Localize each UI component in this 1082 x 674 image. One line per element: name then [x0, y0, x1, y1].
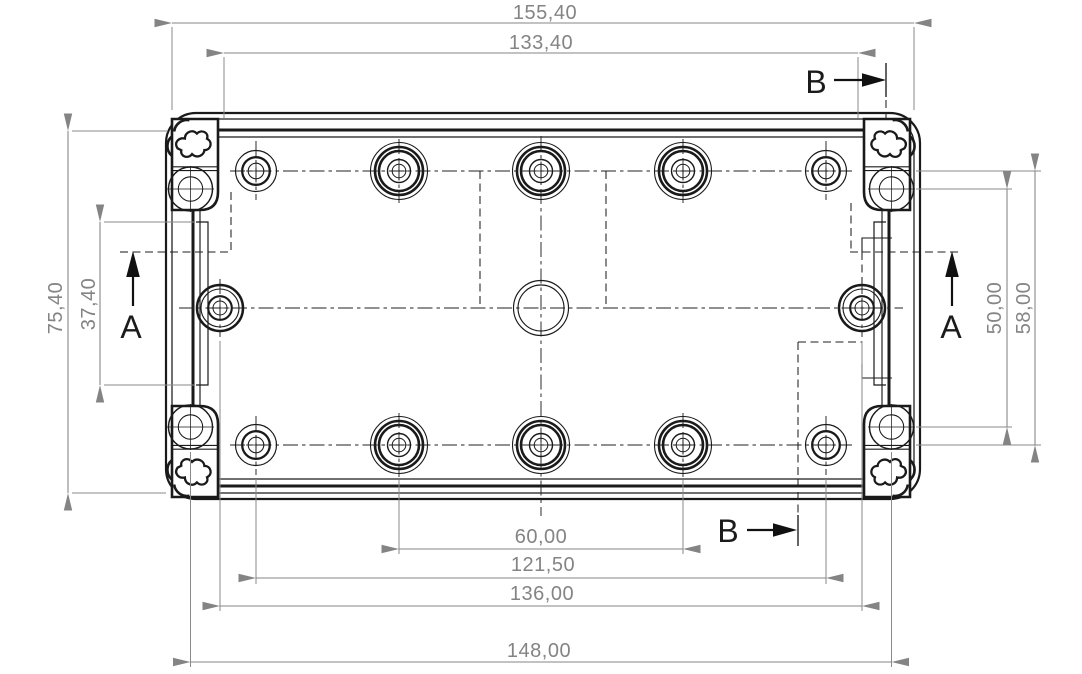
- wall-notches: [196, 222, 892, 385]
- section-arrow-up-icon: [945, 251, 959, 277]
- technical-drawing-page: 155,40 133,40 75,40 37,40 50,00 58,00 60…: [0, 0, 1082, 674]
- corner-pocket-top-right: [864, 115, 921, 212]
- dim-label-148-00: 148,00: [507, 640, 571, 662]
- section-label-a: A: [940, 309, 962, 345]
- corner-pocket-bottom-right: [864, 404, 921, 501]
- centerlines: [179, 136, 903, 516]
- hidden-lines: [120, 171, 958, 342]
- section-marker-b-bottom: B: [717, 342, 798, 549]
- dim-label-136-00: 136,00: [510, 583, 574, 605]
- section-label-b: B: [717, 513, 738, 549]
- section-label-b: B: [805, 64, 826, 100]
- dim-label-58-00: 58,00: [1013, 282, 1035, 335]
- dim-label-50-00: 50,00: [984, 282, 1006, 335]
- dim-label-37-40: 37,40: [78, 278, 100, 331]
- section-marker-b-top: B: [805, 63, 886, 120]
- corner-pocket-bottom-left: [161, 404, 218, 501]
- section-arrow-right-icon: [773, 523, 797, 537]
- section-label-a: A: [120, 309, 142, 345]
- outer-contour-inner: [172, 119, 914, 493]
- section-arrow-up-icon: [126, 251, 140, 277]
- dim-label-155-40: 155,40: [513, 2, 577, 24]
- section-marker-a-right: A: [940, 251, 962, 345]
- enclosure-drawing-canvas: 155,40 133,40 75,40 37,40 50,00 58,00 60…: [0, 0, 1082, 674]
- dim-label-75-40: 75,40: [45, 282, 67, 335]
- dim-label-60-00: 60,00: [515, 526, 568, 548]
- dim-label-133-40: 133,40: [509, 32, 573, 54]
- section-marker-a-left: A: [120, 251, 142, 345]
- section-arrow-right-icon: [862, 73, 886, 87]
- dim-label-121-50: 121,50: [511, 554, 575, 576]
